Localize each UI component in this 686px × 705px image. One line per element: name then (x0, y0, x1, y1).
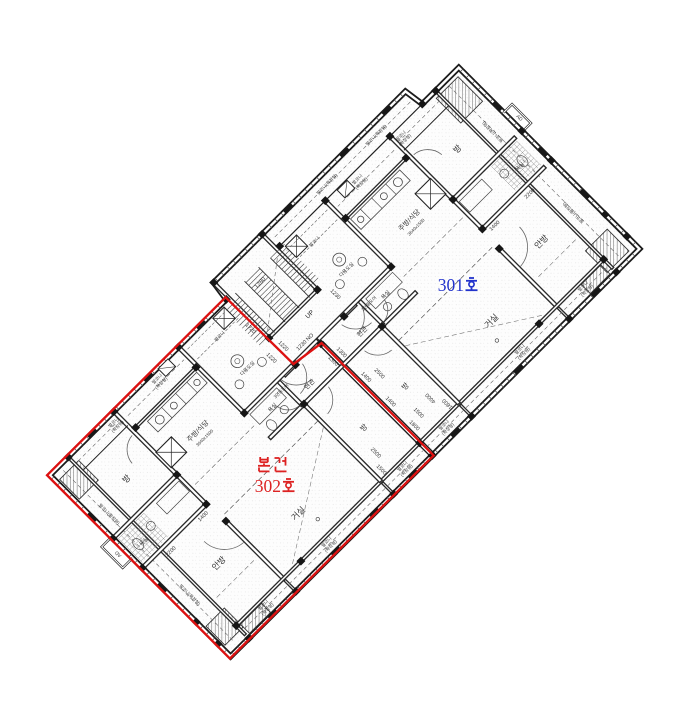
svg-text:301: 301 (438, 275, 464, 295)
svg-text:302: 302 (255, 476, 281, 496)
